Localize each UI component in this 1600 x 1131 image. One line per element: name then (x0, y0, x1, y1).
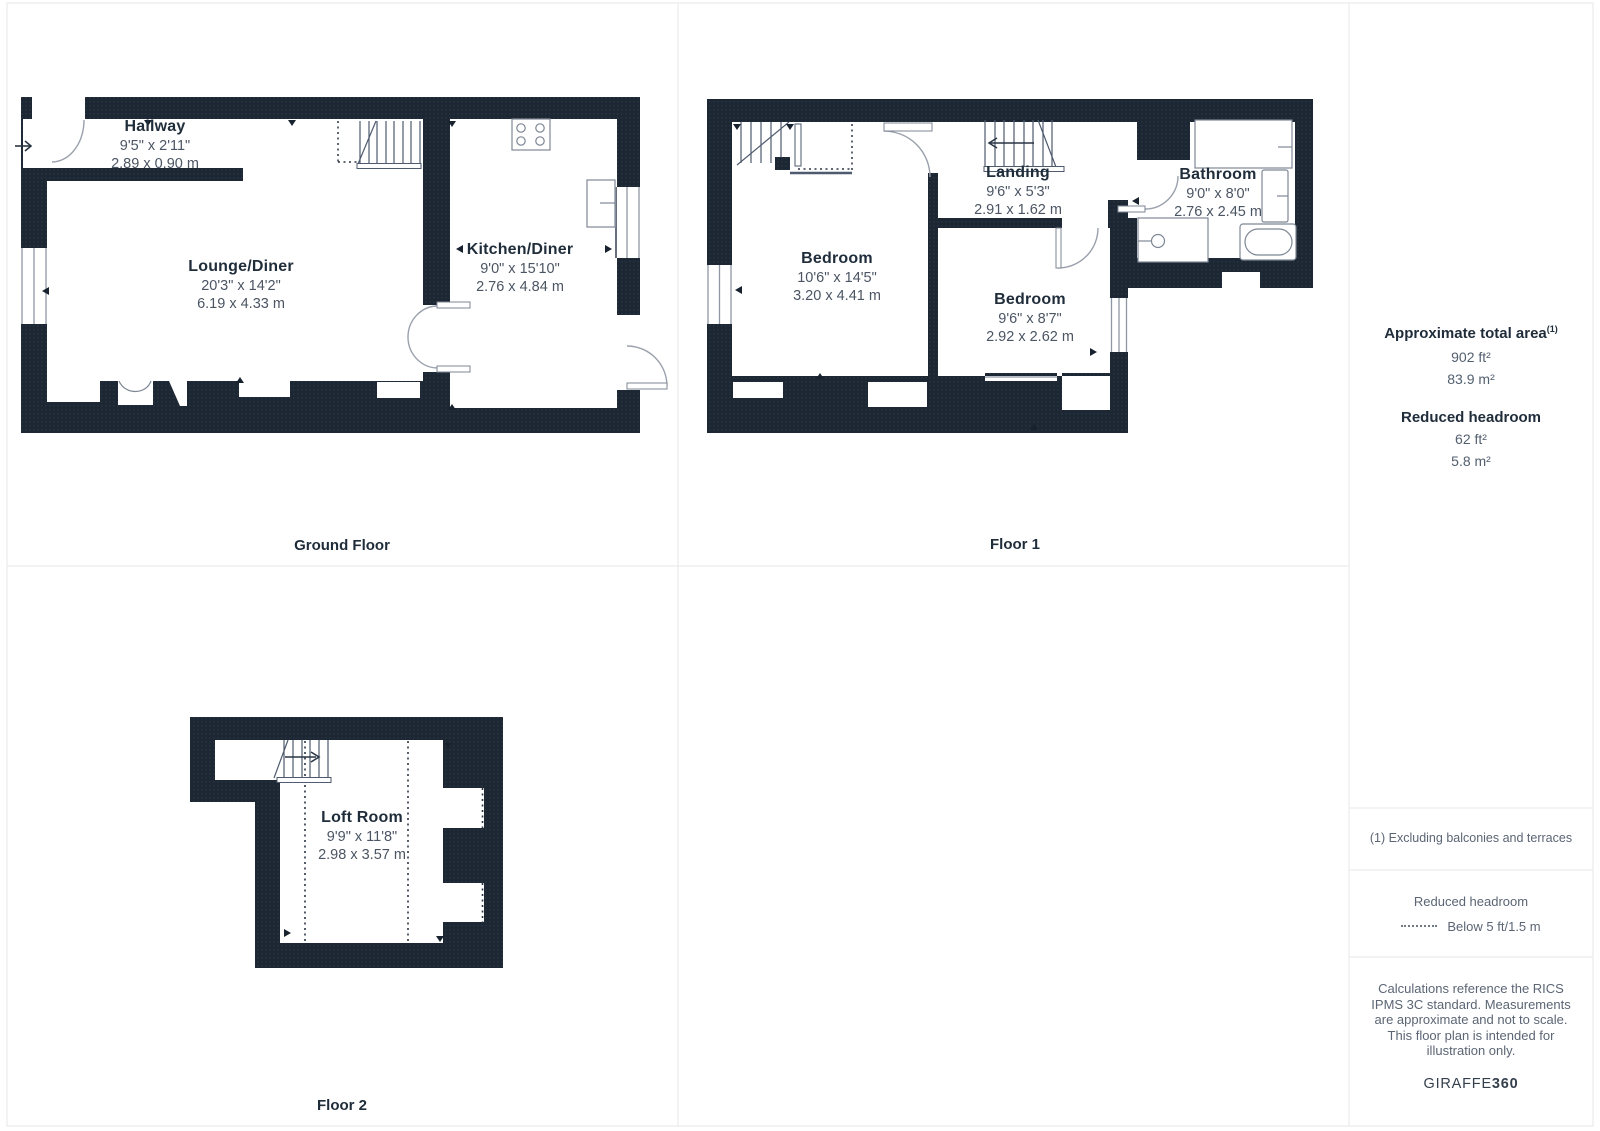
reduced-headroom-heading: Reduced headroom (1349, 409, 1593, 426)
floor-title-floor1: Floor 1 (990, 536, 1040, 553)
disclaimer-text: Calculations reference the RICS IPMS 3C … (1361, 981, 1581, 1059)
floor-title-floor2: Floor 2 (317, 1097, 367, 1114)
shower-icon (1195, 120, 1292, 168)
panel-grid (7, 3, 1593, 1126)
giraffe360-logo: GIRAFFE360 (1349, 1076, 1593, 1092)
room-label-kitchen-diner: Kitchen/Diner 9'0" x 15'10" 2.76 x 4.84 … (467, 241, 574, 297)
stairs-icon (274, 740, 331, 783)
brand-name: GIRAFFE (1423, 1076, 1491, 1092)
reduced-headroom-dotted-line (1401, 925, 1437, 927)
room-label-hallway: Hallway 9'5" x 2'11" 2.89 x 0.90 m (111, 118, 199, 174)
stairs-icon (338, 121, 421, 169)
total-area-heading: Approximate total area(1) (1349, 324, 1593, 342)
reduced-headroom-m: 5.8 m² (1349, 453, 1593, 469)
total-area-ft: 902 ft² (1349, 349, 1593, 365)
room-label-bathroom: Bathroom 9'0" x 8'0" 2.76 x 2.45 m (1174, 166, 1262, 222)
total-area-m: 83.9 m² (1349, 371, 1593, 387)
sink-icon (1138, 218, 1208, 262)
bathtub-icon (1240, 224, 1296, 260)
legend-label: Below 5 ft/1.5 m (1447, 919, 1540, 934)
floor-title-ground: Ground Floor (294, 537, 390, 554)
floorplan-page: Hallway 9'5" x 2'11" 2.89 x 0.90 m Loung… (0, 0, 1600, 1131)
wall-stub (1108, 200, 1128, 228)
room-label-bedroom-1: Bedroom 10'6" x 14'5" 3.20 x 4.41 m (793, 250, 881, 306)
brand-suffix: 360 (1492, 1076, 1519, 1092)
room-label-loft-room: Loft Room 9'9" x 11'8" 2.98 x 3.57 m (318, 809, 406, 865)
door-leaf (437, 302, 470, 372)
door-leaf (627, 383, 667, 389)
room-label-lounge-diner: Lounge/Diner 20'3" x 14'2" 6.19 x 4.33 m (188, 258, 294, 314)
stove-icon (512, 119, 550, 150)
door-arc (408, 306, 437, 368)
sink-icon (587, 180, 615, 227)
legend-heading: Reduced headroom (1349, 894, 1593, 909)
area-footnote: (1) Excluding balconies and terraces (1349, 831, 1593, 845)
floorplan-canvas (0, 0, 1600, 1131)
toilet-icon (1262, 170, 1288, 222)
room-label-bedroom-2: Bedroom 9'6" x 8'7" 2.92 x 2.62 m (986, 291, 1074, 347)
entry-door-arc (52, 120, 84, 162)
room-label-landing: Landing 9'6" x 5'3" 2.91 x 1.62 m (974, 164, 1062, 220)
footnote-marker: (1) (1547, 324, 1558, 334)
stairs-icon (737, 122, 852, 173)
reduced-headroom-ft: 62 ft² (1349, 431, 1593, 447)
legend-row: Below 5 ft/1.5 m (1349, 919, 1593, 934)
door-arc (627, 346, 667, 386)
basin-icon (119, 381, 151, 392)
